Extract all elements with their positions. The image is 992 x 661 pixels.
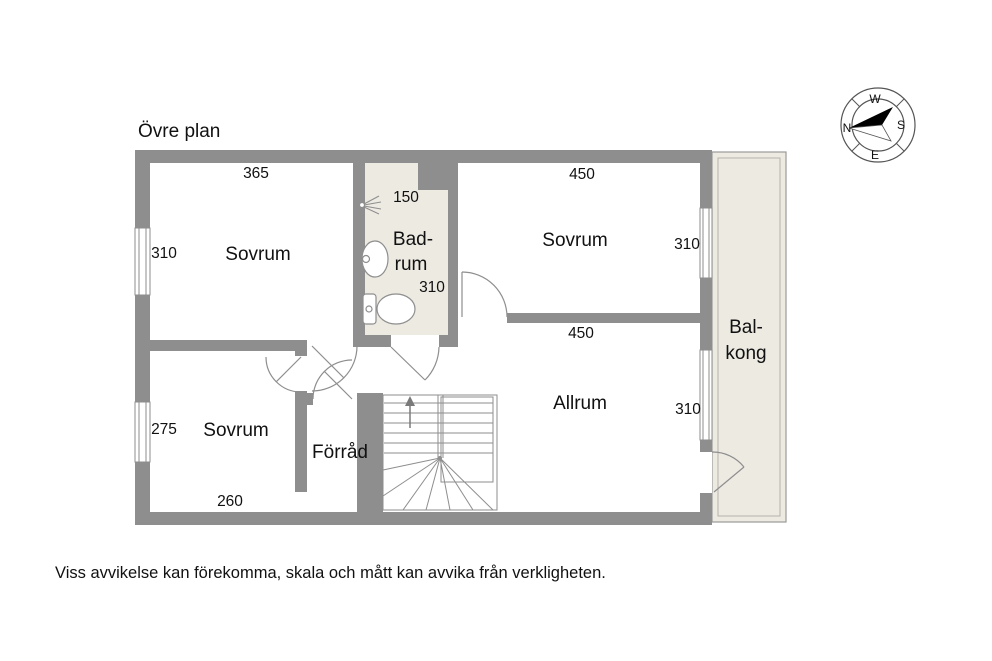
page-title: Övre plan [138,121,220,142]
dim-allrum-width: 450 [568,325,594,342]
sink-icon [362,241,388,277]
window-left-top [135,228,150,295]
window-left-bottom [135,402,150,462]
room-label-balkong-line2: kong [725,343,766,364]
room-label-allrum: Allrum [553,393,607,414]
staircase [383,395,497,510]
compass-rose-icon: W N S E [841,88,915,162]
dim-sovrum-tl-depth: 310 [151,245,177,262]
disclaimer-text: Viss avvikelse kan förekomma, skala och … [55,564,606,582]
room-label-badrum-line1: Bad- [393,229,433,250]
room-label-badrum-line2: rum [395,254,428,275]
room-label-sovrum-top-right: Sovrum [542,230,607,251]
balcony-door-opening [700,452,712,493]
floorplan-canvas: Övre plan [0,0,992,661]
door-sovrum-top-right [462,272,507,317]
dim-sovrum-tr-width: 450 [569,166,595,183]
window-right-bottom [700,350,712,440]
dim-badrum-width: 150 [393,189,419,206]
dim-sovrum-bl-width: 260 [217,493,243,510]
dim-sovrum-bl-depth: 275 [151,421,177,438]
door-sovrum-top-left [312,346,357,391]
compass-south-label: S [897,118,905,132]
compass-north-label: N [843,121,852,135]
room-label-forrad: Förråd [312,442,368,463]
dim-badrum-depth: 310 [419,279,445,296]
compass-west-label: W [869,92,881,106]
room-label-sovrum-bottom-left: Sovrum [203,420,268,441]
dim-sovrum-tl-width: 365 [243,165,269,182]
room-label-sovrum-top-left: Sovrum [225,244,290,265]
door-badrum [391,347,439,380]
dim-allrum-depth: 310 [675,401,701,418]
compass-east-label: E [871,148,879,162]
room-label-balkong-line1: Bal- [729,317,763,338]
window-right-top [700,208,712,278]
dim-sovrum-tr-depth: 310 [674,236,700,253]
toilet-icon [363,294,415,324]
door-sovrum-bottom-left [266,357,301,392]
